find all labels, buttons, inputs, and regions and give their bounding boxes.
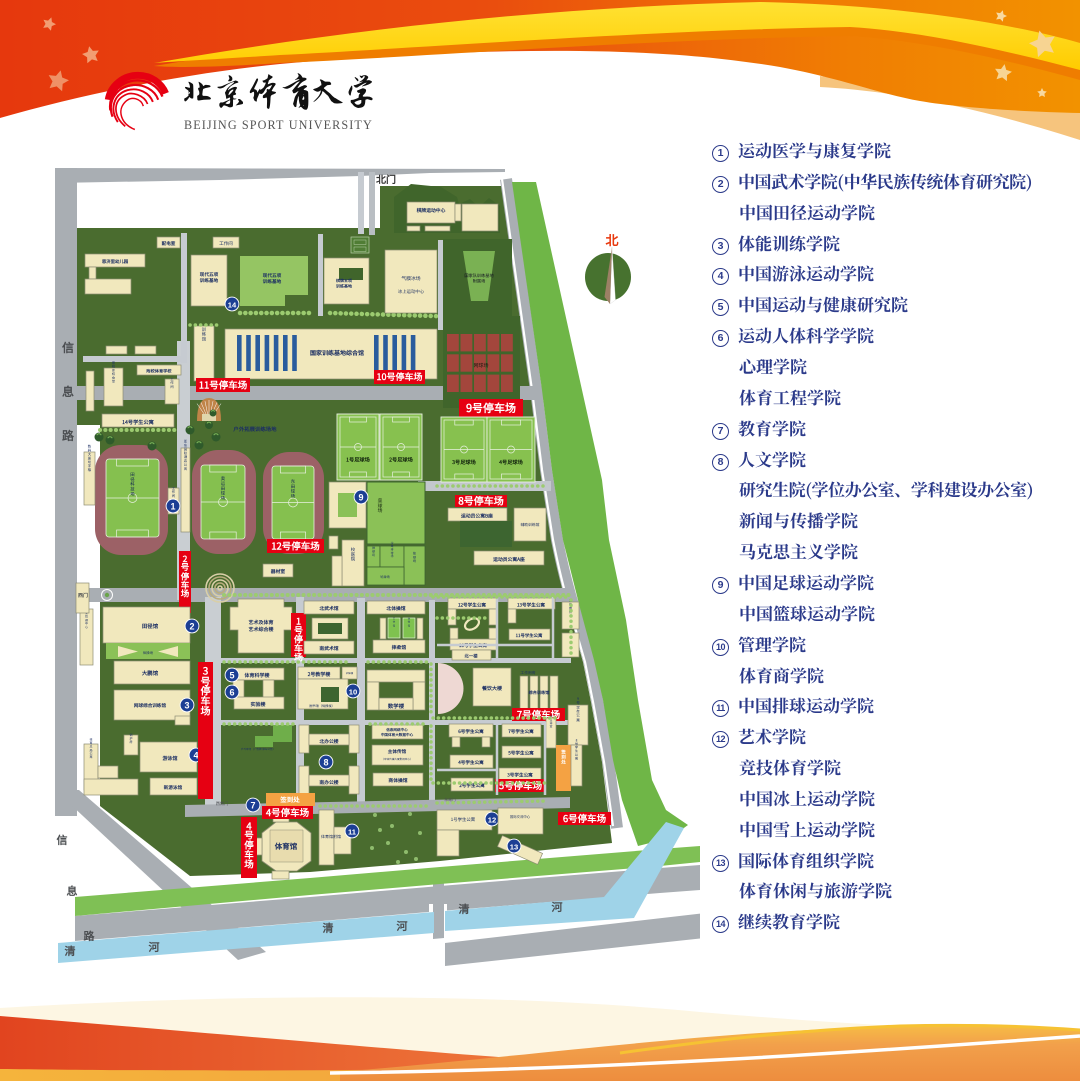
svg-text:4: 4 <box>193 750 198 760</box>
svg-text:5: 5 <box>229 670 234 680</box>
svg-text:13号学生公寓: 13号学生公寓 <box>517 602 545 609</box>
svg-text:1号停车场: 1号停车场 <box>292 616 305 661</box>
svg-text:校医院: 校医院 <box>350 547 356 562</box>
svg-text:息: 息 <box>67 883 78 899</box>
svg-text:运动员公寓B座: 运动员公寓B座 <box>461 513 493 520</box>
svg-text:沙滩排球场: 沙滩排球场 <box>390 541 394 558</box>
svg-text:北体操馆: 北体操馆 <box>386 605 405 612</box>
svg-text:5号停车场: 5号停车场 <box>498 778 543 792</box>
svg-text:附校体育学校: 附校体育学校 <box>146 369 172 375</box>
svg-text:北: 北 <box>605 230 618 249</box>
svg-text:工作间: 工作间 <box>219 241 233 247</box>
svg-text:7: 7 <box>250 800 255 810</box>
svg-text:9号停车场: 9号停车场 <box>466 400 516 416</box>
svg-text:实验楼: 实验楼 <box>250 701 265 708</box>
svg-text:田径馆: 田径馆 <box>142 622 159 630</box>
svg-text:6号学生公寓: 6号学生公寓 <box>458 728 484 735</box>
svg-text:辅助训练馆: 辅助训练馆 <box>521 522 540 528</box>
svg-text:北一楼: 北一楼 <box>464 654 478 660</box>
svg-text:4号停车场: 4号停车场 <box>265 805 310 819</box>
svg-text:4号足球场: 4号足球场 <box>498 459 523 466</box>
svg-text:工作间: 工作间 <box>171 486 176 498</box>
svg-text:锅炉房: 锅炉房 <box>129 733 133 744</box>
svg-text:南武术馆: 南武术馆 <box>319 645 338 652</box>
svg-text:5号学生公寓: 5号学生公寓 <box>507 750 534 757</box>
svg-text:北武术馆: 北武术馆 <box>319 605 338 612</box>
svg-text:训保楼: 训保楼 <box>346 671 354 675</box>
svg-text:艺体馆: 艺体馆 <box>392 618 396 628</box>
svg-text:7号学生公寓: 7号学生公寓 <box>508 728 534 735</box>
svg-text:西南门: 西南门 <box>216 801 229 807</box>
svg-text:信: 信 <box>57 832 68 848</box>
svg-text:国际交流中心: 国际交流中心 <box>510 814 531 819</box>
svg-text:东田径场: 东田径场 <box>290 479 296 499</box>
svg-text:北门: 北门 <box>376 171 396 186</box>
svg-text:10号停车场: 10号停车场 <box>377 370 423 383</box>
svg-text:10: 10 <box>349 687 357 696</box>
svg-text:数码大厦写字楼: 数码大厦写字楼 <box>87 444 92 472</box>
svg-text:游泳馆: 游泳馆 <box>162 755 177 762</box>
svg-text:息: 息 <box>62 383 74 400</box>
svg-text:艺术及体育艺术综合楼: 艺术及体育艺术综合楼 <box>248 619 273 633</box>
svg-text:8号停车场: 8号停车场 <box>458 493 504 508</box>
svg-text:现代五项训练基地: 现代五项训练基地 <box>263 273 282 285</box>
svg-text:奥运田径场: 奥运田径场 <box>220 476 226 501</box>
svg-text:信: 信 <box>62 339 74 356</box>
svg-text:体育馆附馆: 体育馆附馆 <box>321 834 341 840</box>
svg-text:清: 清 <box>323 920 334 936</box>
svg-text:排球场: 排球场 <box>372 546 376 557</box>
svg-text:篮球场: 篮球场 <box>412 551 417 563</box>
svg-text:器材室: 器材室 <box>270 568 286 575</box>
svg-text:户外拓展训练场地: 户外拓展训练场地 <box>232 425 277 433</box>
svg-text:图书馆（情报楼）: 图书馆（情报楼） <box>309 703 335 708</box>
svg-text:14: 14 <box>228 300 237 309</box>
svg-text:亚东国际酒店公寓: 亚东国际酒店公寓 <box>183 439 188 470</box>
svg-text:新游泳馆: 新游泳馆 <box>164 785 183 791</box>
svg-text:11号学生公寓: 11号学生公寓 <box>516 633 543 639</box>
svg-text:3号足球场: 3号足球场 <box>451 459 476 466</box>
svg-text:2号足球场: 2号足球场 <box>389 457 413 464</box>
svg-text:签到处: 签到处 <box>561 749 567 764</box>
svg-text:3: 3 <box>184 700 189 710</box>
svg-text:数学楼: 数学楼 <box>387 702 405 710</box>
svg-text:12: 12 <box>488 815 496 824</box>
svg-text:官校体校食堂: 官校体校食堂 <box>111 361 116 384</box>
svg-text:网球综合训练馆: 网球综合训练馆 <box>134 703 167 709</box>
svg-text:体操场: 体操场 <box>143 650 154 655</box>
svg-text:大鹏馆: 大鹏馆 <box>141 669 159 677</box>
svg-text:签到处: 签到处 <box>279 794 300 804</box>
svg-text:北办公楼: 北办公楼 <box>319 738 338 745</box>
svg-text:清: 清 <box>459 901 470 917</box>
svg-text:南办公楼: 南办公楼 <box>319 779 338 786</box>
svg-text:工作间: 工作间 <box>169 377 174 389</box>
svg-text:恩济里幼儿园: 恩济里幼儿园 <box>102 259 129 265</box>
svg-text:14号学生公寓: 14号学生公寓 <box>122 419 154 426</box>
svg-text:西门: 西门 <box>78 592 88 599</box>
svg-text:网球场: 网球场 <box>473 362 488 369</box>
svg-text:1: 1 <box>170 501 175 511</box>
svg-text:清: 清 <box>65 943 76 959</box>
svg-text:（中体传媒大厦影视中心）: （中体传媒大厦影视中心） <box>381 757 412 761</box>
svg-text:11: 11 <box>348 827 357 836</box>
svg-text:运动员公寓A座: 运动员公寓A座 <box>493 556 525 563</box>
svg-text:2号教学楼: 2号教学楼 <box>308 671 331 678</box>
svg-text:河: 河 <box>397 918 408 934</box>
svg-text:工作用房: 工作用房 <box>520 670 535 676</box>
svg-text:12号学生公寓: 12号学生公寓 <box>458 602 486 609</box>
svg-text:12号停车场: 12号停车场 <box>271 538 320 552</box>
svg-text:体育科学楼: 体育科学楼 <box>243 672 269 679</box>
svg-text:气膜冰场: 气膜冰场 <box>401 275 420 282</box>
svg-text:轮滑场: 轮滑场 <box>380 574 390 579</box>
svg-text:2: 2 <box>189 621 194 631</box>
svg-text:4号停车场: 4号停车场 <box>242 820 256 869</box>
svg-text:2号停车场: 2号停车场 <box>179 554 191 597</box>
svg-text:1号学生公寓: 1号学生公寓 <box>451 817 476 823</box>
svg-text:国家训练基地综合馆: 国家训练基地综合馆 <box>310 348 364 357</box>
svg-text:3号停车场: 3号停车场 <box>198 665 213 717</box>
svg-text:11号停车场: 11号停车场 <box>199 377 248 391</box>
svg-text:摔柔馆: 摔柔馆 <box>392 644 407 651</box>
svg-text:综合训练馆: 综合训练馆 <box>529 690 551 696</box>
svg-text:餐饮大楼: 餐饮大楼 <box>481 685 502 692</box>
svg-text:8: 8 <box>323 757 328 767</box>
svg-text:主体传馆: 主体传馆 <box>388 749 407 755</box>
svg-text:冰上运动中心: 冰上运动中心 <box>398 289 425 295</box>
svg-text:河: 河 <box>149 939 160 955</box>
svg-text:体操馆: 体操馆 <box>407 618 411 628</box>
svg-text:9号学生公寓: 9号学生公寓 <box>575 697 580 723</box>
svg-text:体育总局公寓: 体育总局公寓 <box>89 738 93 760</box>
svg-text:田径科技场: 田径科技场 <box>130 472 136 497</box>
svg-text:垒球场: 垒球场 <box>377 497 384 513</box>
svg-text:棋牌五项训练基地: 棋牌五项训练基地 <box>335 278 352 290</box>
svg-text:路: 路 <box>84 928 96 944</box>
svg-text:9: 9 <box>358 492 363 502</box>
svg-text:现代五项训练基地: 现代五项训练基地 <box>200 272 219 284</box>
svg-text:河: 河 <box>552 899 563 915</box>
svg-text:商体操馆: 商体操馆 <box>388 777 407 784</box>
svg-text:乒乓球场（广告牌 停车公告）: 乒乓球场（广告牌 停车公告） <box>241 747 275 751</box>
svg-text:1号足球场: 1号足球场 <box>346 457 370 464</box>
svg-text:6: 6 <box>229 687 234 697</box>
svg-text:6号停车场: 6号停车场 <box>563 811 607 825</box>
svg-text:4号学生公寓: 4号学生公寓 <box>457 759 484 766</box>
svg-text:训练馆: 训练馆 <box>201 327 207 342</box>
svg-text:棋牌运动中心: 棋牌运动中心 <box>416 207 446 214</box>
svg-text:体育馆: 体育馆 <box>275 841 298 852</box>
svg-text:8号学生公寓: 8号学生公寓 <box>574 738 579 761</box>
svg-text:路: 路 <box>62 427 75 444</box>
svg-text:13: 13 <box>510 842 518 851</box>
svg-text:配电室: 配电室 <box>162 240 176 247</box>
